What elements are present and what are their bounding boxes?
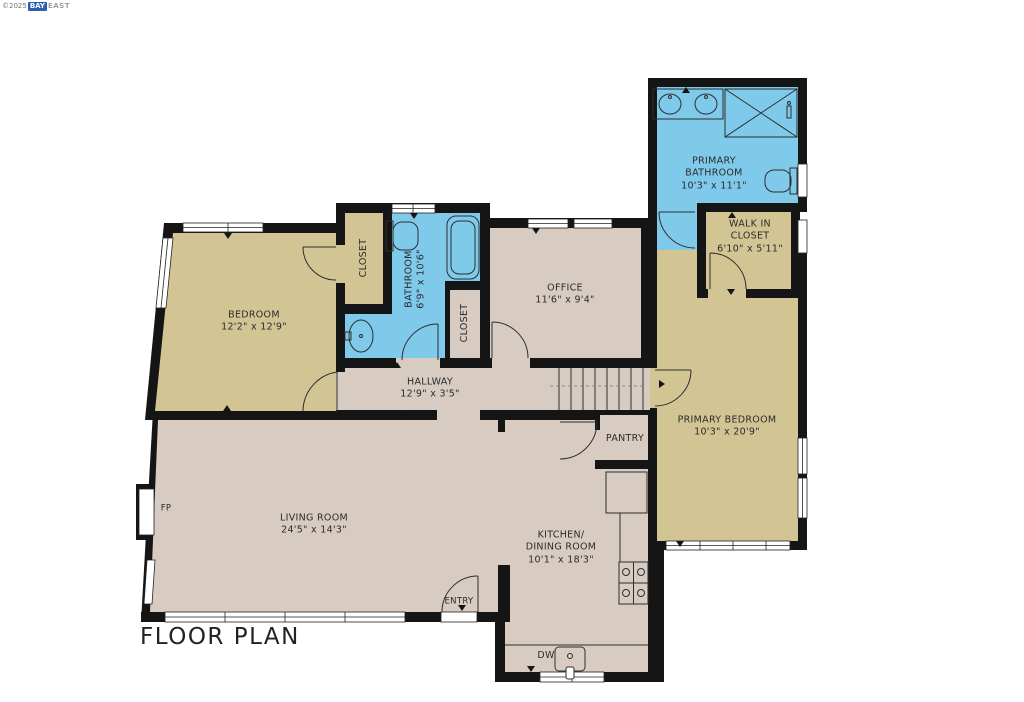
floor-plan-page: BEDROOM 12'2" x 12'9" CLOSET BATHROOM 6'… [0,0,1024,702]
room-label-primary-bathroom: PRIMARY BATHROOM 10'3" x 11'1" [681,155,747,192]
room-label-bedroom-closet: CLOSET [358,239,370,278]
watermark: ©2025 BAY EAST [2,2,70,11]
room-label-pantry: PANTRY [606,433,644,445]
floor-plan-drawing [0,0,1024,702]
page-title: FLOOR PLAN [140,624,300,650]
room-label-walk-in-closet: WALK IN CLOSET 6'10" x 5'11" [717,218,783,255]
room-label-primary-bedroom: PRIMARY BEDROOM 10'3" x 20'9" [678,415,777,440]
fireplace-box [139,489,154,535]
room-label-hall-closet: CLOSET [459,304,471,343]
watermark-brand: EAST [48,3,70,10]
watermark-logo: BAY [28,2,47,11]
fireplace-label: FP [161,503,172,514]
room-label-bedroom: BEDROOM 12'2" x 12'9" [221,310,287,335]
room-label-hallway: HALLWAY 12'9" x 3'5" [400,377,459,402]
watermark-year: ©2025 [2,3,27,10]
room-label-bathroom: BATHROOM 6'9" x 10'6" [404,249,429,308]
primary-bedroom-floor-left [657,250,697,541]
dishwasher-label: DW [537,650,554,662]
room-label-office: OFFICE 11'6" x 9'4" [535,283,594,308]
room-label-kitchen: KITCHEN/ DINING ROOM 10'1" x 18'3" [526,529,597,566]
entry-label: ENTRY [445,596,474,607]
hallway-floor [345,368,650,410]
room-label-living-room: LIVING ROOM 24'5" x 14'3" [280,513,348,538]
